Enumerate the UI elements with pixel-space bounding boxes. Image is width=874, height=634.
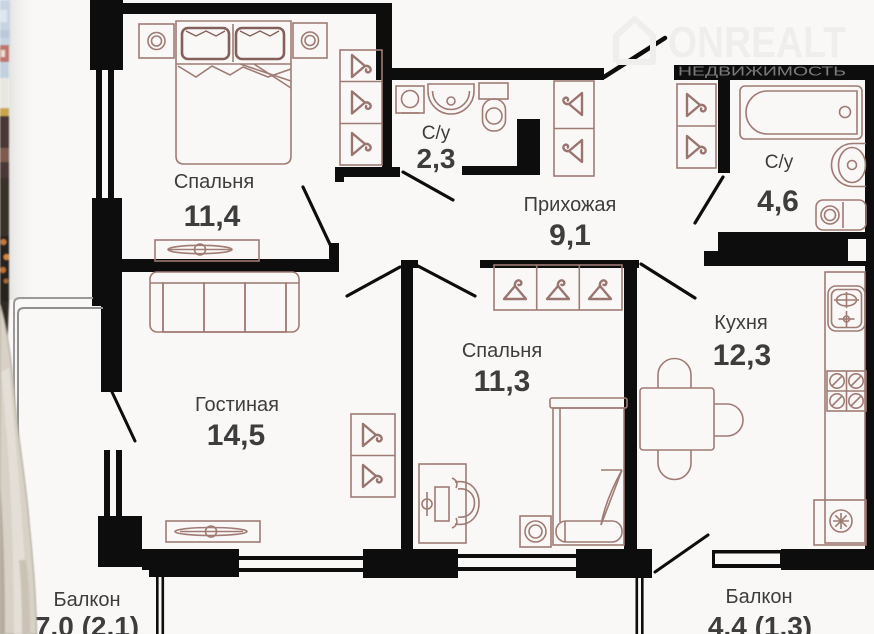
svg-text:11,3: 11,3	[474, 365, 531, 398]
svg-text:4,6: 4,6	[757, 185, 799, 218]
svg-text:С/у: С/у	[765, 152, 794, 173]
svg-text:НЕДВИЖИМОСТЬ: НЕДВИЖИМОСТЬ	[678, 64, 846, 79]
svg-text:11,4: 11,4	[184, 200, 241, 233]
svg-text:9,1: 9,1	[549, 219, 591, 252]
svg-text:С/у: С/у	[422, 123, 451, 144]
svg-text:7,0 (2,1): 7,0 (2,1)	[35, 611, 139, 634]
svg-text:Прихожая: Прихожая	[524, 194, 617, 216]
svg-text:4,4 (1,3): 4,4 (1,3)	[708, 611, 812, 634]
svg-text:Спальня: Спальня	[174, 171, 254, 193]
svg-text:Гостиная: Гостиная	[195, 394, 279, 416]
svg-text:12,3: 12,3	[713, 339, 771, 372]
svg-text:Балкон: Балкон	[53, 589, 120, 611]
svg-text:ONREALT: ONREALT	[668, 18, 846, 67]
svg-text:Кухня: Кухня	[714, 312, 768, 334]
svg-text:14,5: 14,5	[207, 419, 265, 452]
svg-text:Балкон: Балкон	[725, 586, 792, 608]
svg-text:2,3: 2,3	[417, 143, 456, 174]
svg-text:Спальня: Спальня	[462, 340, 542, 362]
